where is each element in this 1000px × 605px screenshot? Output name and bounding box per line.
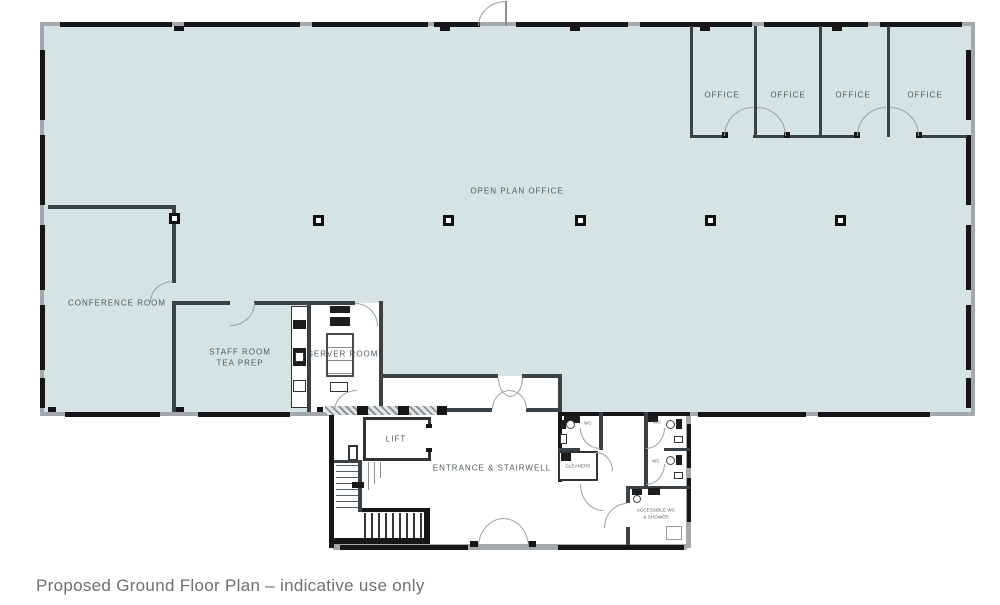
office-front-wall — [920, 135, 967, 138]
window-panel — [198, 412, 290, 417]
wc-wall — [664, 448, 690, 451]
wall-tab — [700, 26, 710, 31]
stair-handrail — [374, 462, 375, 484]
column — [575, 215, 586, 226]
drawing-caption: Proposed Ground Floor Plan – indicative … — [36, 576, 425, 596]
room-label-server: SERVER ROOM — [308, 350, 379, 359]
room-label-lift: LIFT — [386, 435, 406, 444]
window-panel — [40, 50, 45, 120]
wall-tab — [174, 26, 184, 31]
window-panel — [184, 22, 300, 27]
vestibule-wall — [381, 374, 498, 378]
stair-handrail — [368, 462, 369, 490]
conference-wall — [48, 205, 176, 209]
window-panel — [966, 378, 971, 408]
room-label-conference: CONFERENCE ROOM — [68, 299, 166, 308]
stair-wall — [424, 508, 430, 540]
window-panel — [966, 135, 971, 205]
column — [443, 215, 454, 226]
door-jamb — [470, 541, 478, 547]
window-panel — [966, 225, 971, 290]
office-front-wall — [690, 135, 724, 138]
server-room-wall — [311, 301, 355, 305]
toilet — [666, 456, 675, 465]
room-label-office-4: OFFICE — [907, 91, 942, 100]
stair-wall — [334, 538, 430, 544]
kitchen-sink-basin — [295, 352, 304, 362]
door-jamb — [528, 541, 536, 547]
office-partition — [819, 26, 822, 137]
room-label-office-1: OFFICE — [704, 91, 739, 100]
window-panel — [966, 50, 971, 120]
lift-shaft-wall — [398, 406, 409, 415]
lift-control-cabinet — [348, 445, 358, 461]
door-jamb — [426, 448, 432, 452]
stair-newel — [352, 482, 364, 488]
room-label-wc-2: WC — [653, 420, 661, 425]
lift-door-opening — [428, 428, 434, 448]
toilet — [676, 419, 682, 429]
door-jamb — [426, 424, 432, 428]
wall-tab — [570, 26, 580, 31]
vestibule-wall — [526, 408, 560, 412]
window-panel — [40, 305, 45, 370]
vestibule-wall — [522, 374, 562, 378]
column — [313, 215, 324, 226]
room-label-staff-room: STAFF ROOM — [209, 348, 271, 357]
sink — [674, 436, 683, 443]
sink — [560, 434, 567, 444]
server-cabinet — [330, 382, 348, 392]
window-panel — [880, 22, 962, 27]
toilet — [676, 455, 682, 465]
window-panel — [640, 22, 752, 27]
server-cabinet — [330, 306, 350, 313]
room-label-accessible-wc: ACCESSIBLE WC — [637, 508, 675, 513]
staff-room-wall — [176, 301, 230, 305]
server-cabinet — [330, 317, 350, 326]
toilet — [633, 495, 641, 503]
server-room-wall — [379, 301, 383, 412]
window-panel — [558, 545, 684, 550]
wall-tab — [832, 26, 842, 31]
door-leaf — [505, 1, 507, 26]
window-panel — [65, 412, 160, 417]
room-label-wc-1: WC — [584, 421, 592, 426]
room-label-tea-prep: TEA PREP — [216, 359, 263, 368]
conference-wall — [172, 301, 176, 412]
office-partition — [690, 26, 693, 137]
wc-wall — [626, 527, 630, 545]
wall-tab — [317, 407, 323, 412]
room-label-cleaners: CLEANERS — [565, 464, 590, 469]
window-panel — [687, 478, 691, 522]
window-panel — [40, 378, 45, 408]
room-label-wc-3: WC — [652, 459, 660, 464]
room-label-open-plan: OPEN PLAN OFFICE — [470, 187, 563, 196]
window-panel — [966, 305, 971, 370]
window-panel — [764, 22, 868, 27]
window-panel — [312, 22, 428, 27]
staff-room-wall — [254, 301, 311, 305]
window-panel — [340, 545, 468, 550]
lift-shaft-wall — [357, 406, 368, 415]
column — [169, 213, 180, 224]
wall-tab — [48, 407, 56, 412]
floor-plan-page: OFFICE OFFICE OFFICE OFFICE OPEN PLAN OF… — [0, 0, 1000, 605]
wall-tab — [440, 26, 450, 31]
sink — [674, 472, 683, 479]
window-panel — [698, 412, 806, 417]
toilet — [566, 420, 575, 429]
kitchen-unit — [293, 380, 306, 392]
stair-handrail — [380, 462, 381, 478]
shower-tray — [666, 526, 682, 540]
exterior-wall — [329, 412, 334, 548]
column — [705, 215, 716, 226]
lift-shaft-wall — [437, 406, 447, 415]
vestibule-wall — [558, 374, 562, 412]
stair-flight — [364, 513, 426, 538]
window-panel — [40, 225, 45, 290]
stair-wall — [362, 508, 428, 512]
room-label-office-3: OFFICE — [835, 91, 870, 100]
room-label-accessible-shower: & SHOWER — [643, 515, 668, 520]
toilet — [666, 420, 675, 429]
room-label-office-2: OFFICE — [770, 91, 805, 100]
cleaners-sink — [561, 453, 571, 461]
window-panel — [687, 424, 691, 468]
kitchen-appliance — [293, 320, 306, 329]
door-swing — [478, 1, 506, 26]
sink — [648, 488, 660, 495]
room-label-entrance: ENTRANCE & STAIRWELL — [433, 464, 551, 473]
window-panel — [60, 22, 172, 27]
window-panel — [818, 412, 930, 417]
wc-wall — [626, 486, 630, 503]
column — [835, 215, 846, 226]
window-panel — [40, 135, 45, 205]
